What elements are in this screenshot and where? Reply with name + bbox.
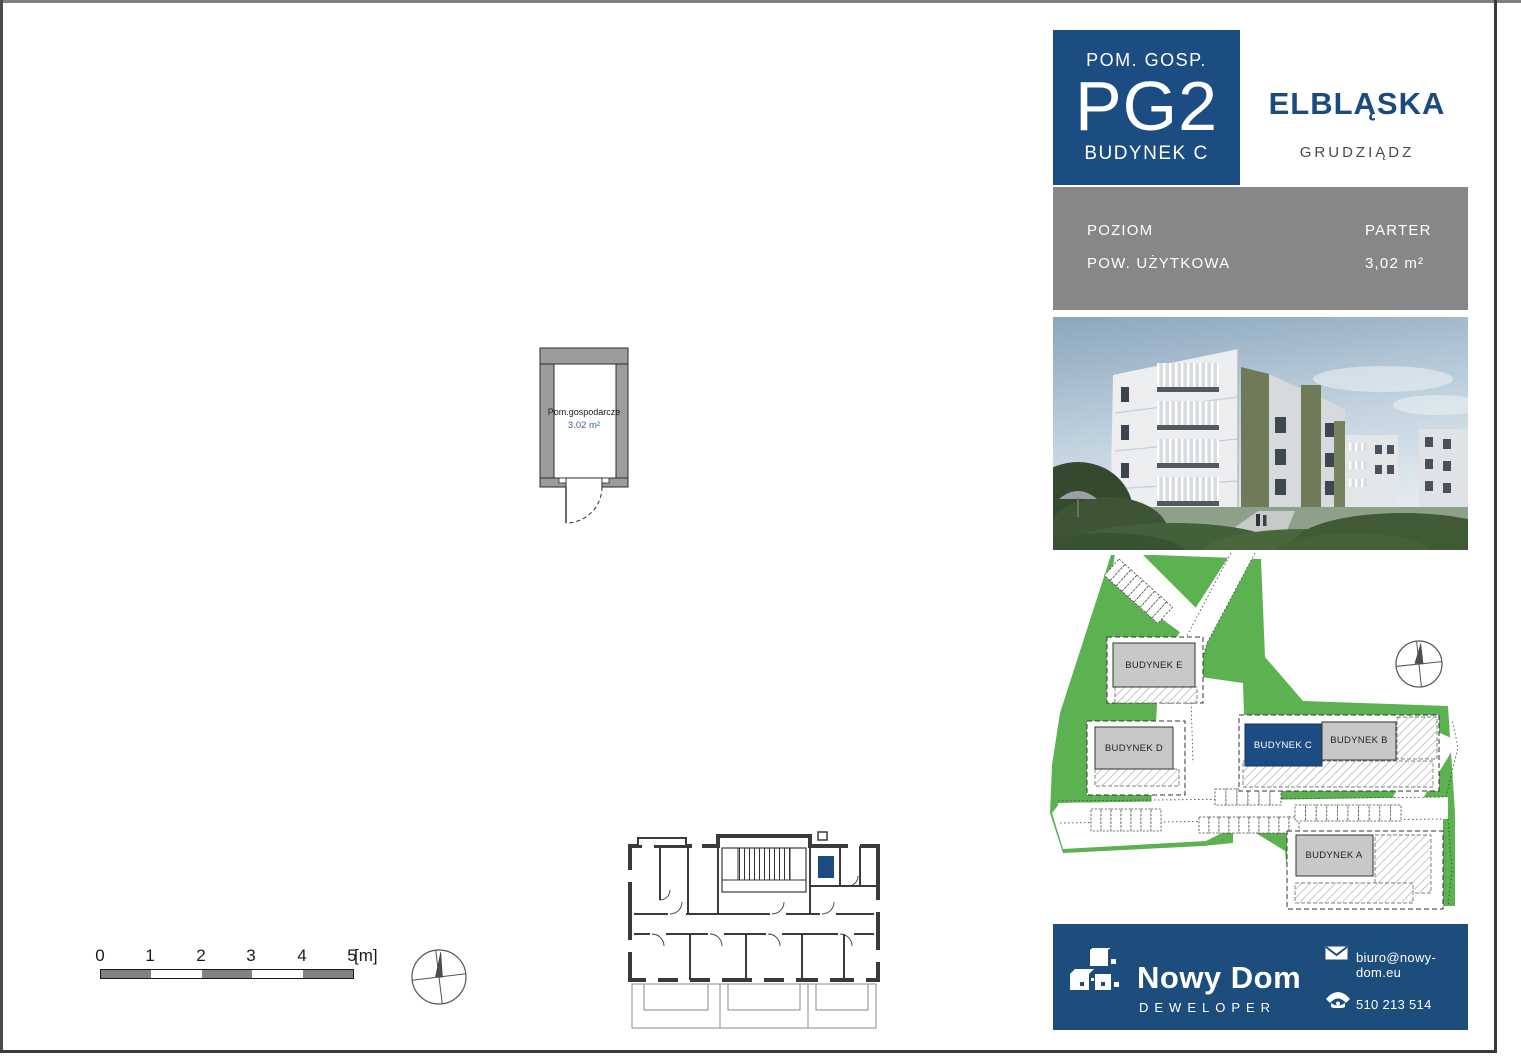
building-e-label: BUDYNEK E <box>1125 660 1183 671</box>
site-plan: BUDYNEK E BUDYNEK D BUDYNEK C BUDYNEK B … <box>1048 551 1470 915</box>
company-name: Nowy Dom <box>1137 960 1301 996</box>
email-icon <box>1325 946 1348 960</box>
project-title: ELBLĄSKA <box>1243 86 1471 122</box>
door-swing-arc <box>566 487 602 523</box>
building-render-photo <box>1053 317 1468 550</box>
building-b-label: BUDYNEK B <box>1330 735 1388 746</box>
detail-value: PARTER <box>1365 222 1432 239</box>
wall-top <box>540 348 628 364</box>
wall-left <box>540 364 554 478</box>
room-area: 3.02 m² <box>568 420 600 431</box>
building-d-label: BUDYNEK D <box>1105 743 1163 754</box>
phone-text: 510 213 514 <box>1356 997 1432 1012</box>
wall-right <box>616 364 628 478</box>
mini-floor-plan <box>622 830 884 1032</box>
detail-label: POZIOM <box>1087 222 1365 239</box>
project-header: ELBLĄSKA GRUDZIĄDZ <box>1243 86 1471 161</box>
details-box: POZIOM PARTER POW. UŻYTKOWA 3,02 m² <box>1053 187 1468 310</box>
unit-floor-plan: Pom.gospodarcze 3.02 m² <box>538 344 632 530</box>
scale-tick: 4 <box>297 946 306 966</box>
compass-icon <box>408 946 470 1008</box>
room-label: Pom.gospodarcze <box>548 407 621 417</box>
green-panel <box>1301 385 1321 521</box>
page-border-right <box>1494 0 1497 1053</box>
details-row: POW. UŻYTKOWA 3,02 m² <box>1087 255 1448 272</box>
stairwell <box>722 848 806 892</box>
phone-icon <box>1325 988 1351 1008</box>
page-border-top <box>0 0 1521 3</box>
terraces <box>632 984 876 1028</box>
green-panel <box>1334 421 1345 519</box>
building-a-label: BUDYNEK A <box>1305 850 1362 861</box>
scale-bar-segments <box>100 969 354 979</box>
scale-tick: 1 <box>145 946 154 966</box>
page-border-left <box>0 0 3 1053</box>
scale-bar: 0 1 2 3 4 5 [m] <box>95 946 405 990</box>
green-panel <box>1241 367 1269 527</box>
company-role: DEWELOPER <box>1139 1000 1276 1015</box>
developer-footer: Nowy Dom DEWELOPER biuro@nowy-dom.eu 510… <box>1053 924 1468 1030</box>
unit-id: PG2 <box>1075 71 1218 142</box>
unit-id-card: POM. GOSP. PG2 BUDYNEK C <box>1053 30 1240 185</box>
background-building-right <box>1419 429 1468 513</box>
project-city: GRUDZIĄDZ <box>1243 144 1471 161</box>
detail-value: 3,02 m² <box>1365 255 1424 272</box>
scale-unit: [m] <box>354 946 378 966</box>
nowy-dom-logo <box>1070 948 1126 1004</box>
email-text: biuro@nowy-dom.eu <box>1356 950 1468 980</box>
unit-building: BUDYNEK C <box>1084 143 1208 165</box>
detail-label: POW. UŻYTKOWA <box>1087 255 1365 272</box>
scale-tick: 2 <box>196 946 205 966</box>
scale-tick: 3 <box>246 946 255 966</box>
site-compass-icon <box>1394 639 1445 690</box>
scale-tick: 0 <box>95 946 104 966</box>
details-row: POZIOM PARTER <box>1087 222 1448 239</box>
highlighted-unit <box>818 856 834 878</box>
building-c-label: BUDYNEK C <box>1254 740 1312 751</box>
page-border-bottom <box>0 1050 1497 1053</box>
background-building-mid <box>1345 435 1398 509</box>
floorplan-sheet: POM. GOSP. PG2 BUDYNEK C ELBLĄSKA GRUDZI… <box>0 0 1521 1058</box>
